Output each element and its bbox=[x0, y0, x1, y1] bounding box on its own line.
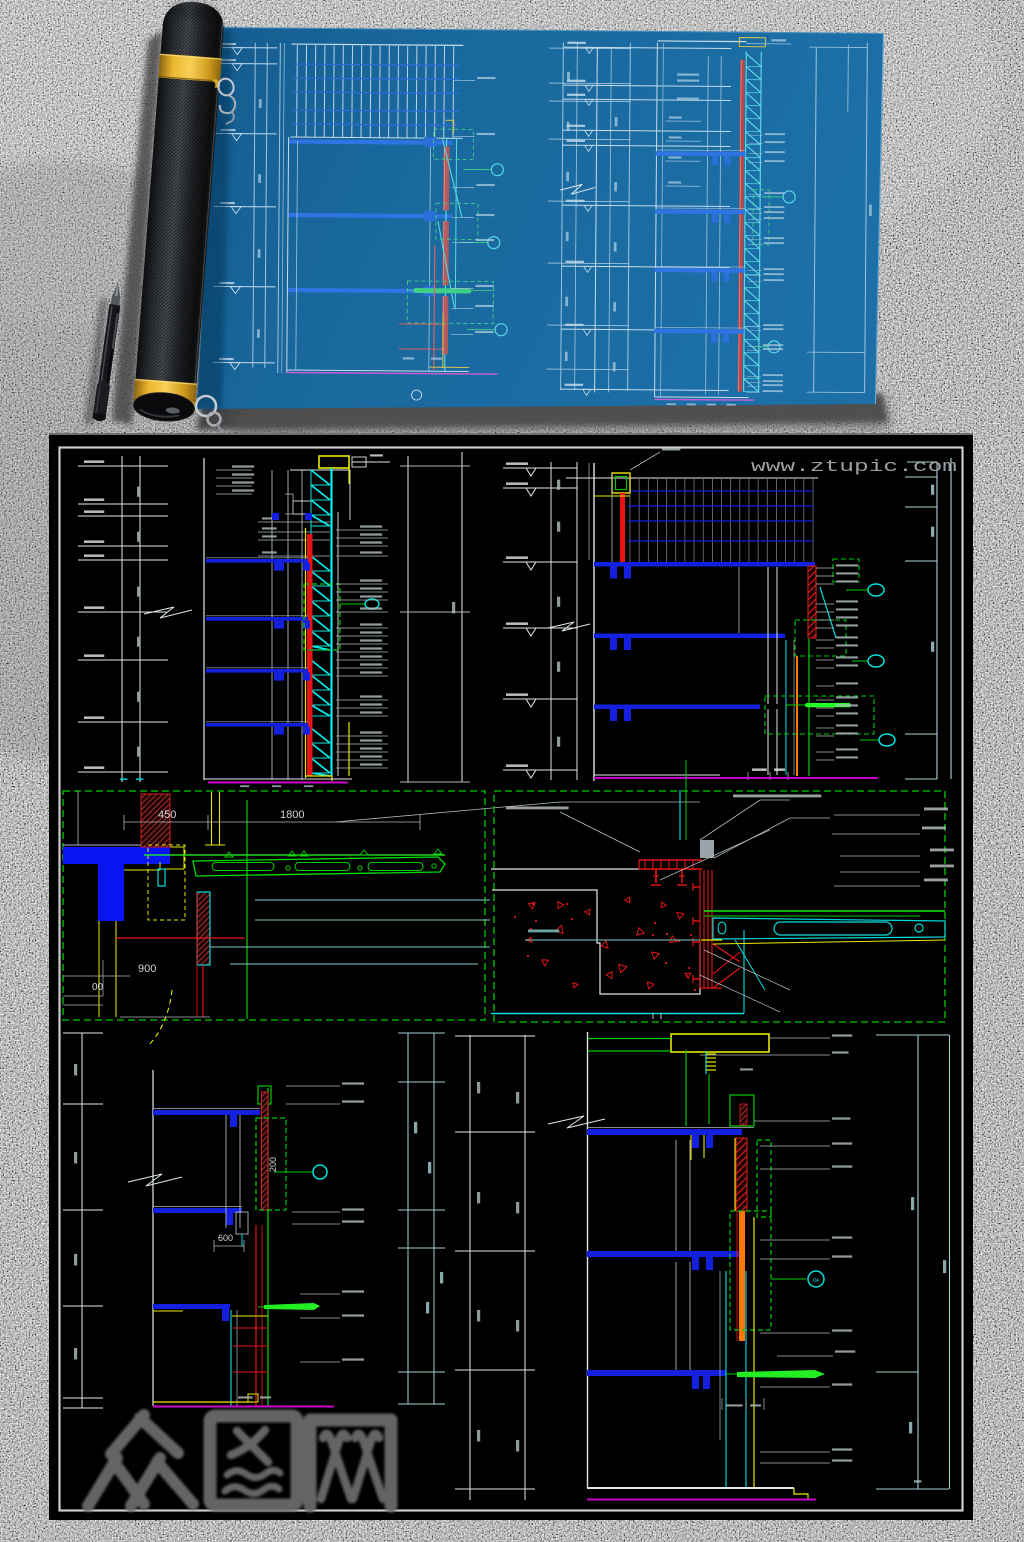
svg-text:450: 450 bbox=[158, 809, 176, 821]
svg-text:00: 00 bbox=[92, 982, 104, 993]
svg-text:www.ztupic.com: www.ztupic.com bbox=[751, 458, 957, 477]
svg-text:04: 04 bbox=[813, 1278, 819, 1284]
svg-text:900: 900 bbox=[138, 963, 156, 975]
svg-text:1800: 1800 bbox=[280, 809, 304, 821]
svg-text:600: 600 bbox=[218, 1233, 233, 1243]
svg-text:200: 200 bbox=[268, 1157, 278, 1172]
